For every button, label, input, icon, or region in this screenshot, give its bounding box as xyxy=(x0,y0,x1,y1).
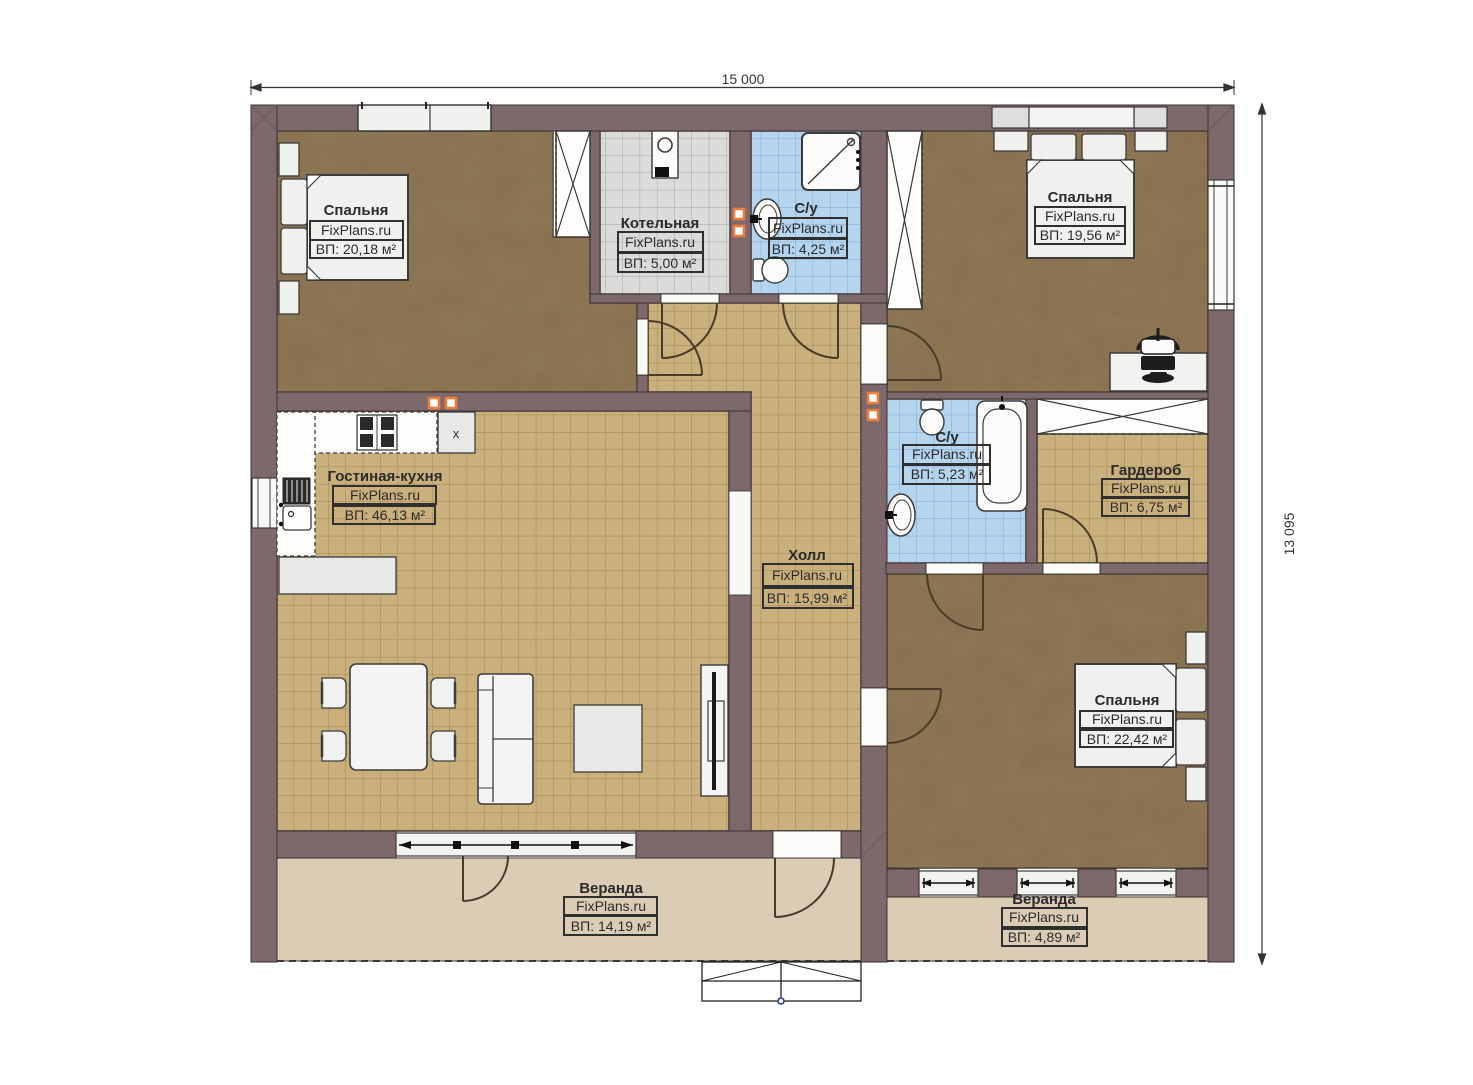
svg-text:FixPlans.ru: FixPlans.ru xyxy=(772,567,842,583)
svg-text:ВП: 46,13 м²: ВП: 46,13 м² xyxy=(345,507,426,523)
svg-text:FixPlans.ru: FixPlans.ru xyxy=(1045,208,1115,224)
svg-text:ВП: 19,56 м²: ВП: 19,56 м² xyxy=(1040,227,1121,243)
svg-text:ВП: 14,19 м²: ВП: 14,19 м² xyxy=(571,918,652,934)
svg-text:ВП: 22,42 м²: ВП: 22,42 м² xyxy=(1087,731,1168,747)
svg-text:Котельная: Котельная xyxy=(621,215,700,232)
svg-text:Веранда: Веранда xyxy=(1012,891,1076,908)
svg-text:Гостиная-кухня: Гостиная-кухня xyxy=(328,468,443,485)
svg-text:ВП: 4,89 м²: ВП: 4,89 м² xyxy=(1008,929,1081,945)
svg-text:FixPlans.ru: FixPlans.ru xyxy=(1092,711,1162,727)
svg-text:ВП: 5,00 м²: ВП: 5,00 м² xyxy=(624,255,697,271)
svg-text:15 000: 15 000 xyxy=(722,71,765,87)
svg-text:Холл: Холл xyxy=(788,547,826,564)
svg-text:FixPlans.ru: FixPlans.ru xyxy=(576,898,646,914)
svg-text:Спальня: Спальня xyxy=(1048,189,1113,206)
svg-text:ВП: 6,75 м²: ВП: 6,75 м² xyxy=(1110,499,1183,515)
svg-text:FixPlans.ru: FixPlans.ru xyxy=(773,220,843,236)
svg-text:x: x xyxy=(453,426,460,441)
svg-text:FixPlans.ru: FixPlans.ru xyxy=(912,446,982,462)
svg-text:ВП: 15,99 м²: ВП: 15,99 м² xyxy=(767,590,848,606)
svg-text:Гардероб: Гардероб xyxy=(1111,462,1182,479)
svg-text:Спальня: Спальня xyxy=(324,202,389,219)
svg-text:FixPlans.ru: FixPlans.ru xyxy=(1111,480,1181,496)
svg-text:13 095: 13 095 xyxy=(1281,512,1297,555)
svg-text:Веранда: Веранда xyxy=(579,880,643,897)
svg-text:FixPlans.ru: FixPlans.ru xyxy=(350,487,420,503)
svg-text:FixPlans.ru: FixPlans.ru xyxy=(321,222,391,238)
svg-text:Спальня: Спальня xyxy=(1095,692,1160,709)
svg-text:FixPlans.ru: FixPlans.ru xyxy=(1009,909,1079,925)
svg-text:FixPlans.ru: FixPlans.ru xyxy=(625,234,695,250)
svg-text:ВП: 5,23 м²: ВП: 5,23 м² xyxy=(911,466,984,482)
svg-text:С/у: С/у xyxy=(794,200,818,217)
svg-text:ВП: 20,18 м²: ВП: 20,18 м² xyxy=(316,241,397,257)
svg-text:С/у: С/у xyxy=(935,429,959,446)
svg-text:ВП: 4,25 м²: ВП: 4,25 м² xyxy=(772,241,845,257)
